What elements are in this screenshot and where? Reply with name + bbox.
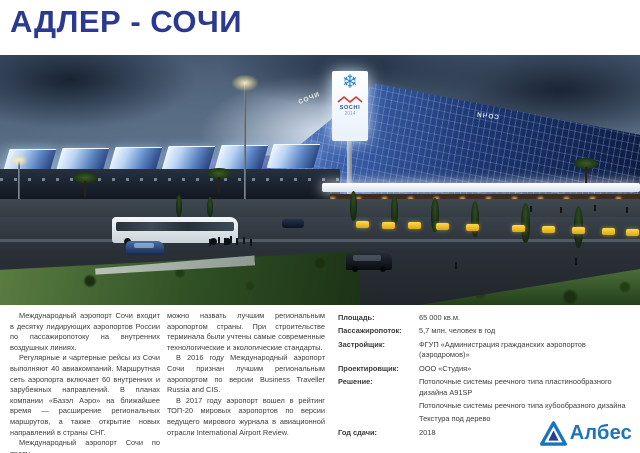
passengers xyxy=(530,206,532,212)
paragraph: можно назвать лучшим региональным аэропо… xyxy=(167,311,325,353)
page-title: АДЛЕР - СОЧИ xyxy=(10,4,242,40)
spec-value: 65 000 кв.м. xyxy=(419,313,636,324)
terminal-module xyxy=(162,146,216,170)
paragraph: В 2017 году аэропорт вошел в рейтинг ТОП… xyxy=(167,396,325,438)
taxi xyxy=(542,226,555,233)
lamp-glow xyxy=(232,75,258,91)
passengers xyxy=(575,258,577,265)
cypress-tree xyxy=(176,195,182,217)
taxi xyxy=(626,229,639,236)
description-column-2: можно назвать лучшим региональным аэропо… xyxy=(167,311,325,438)
slide-adler-sochi: АДЛЕР - СОЧИ СОЧИ СОЧИ ❄ SOCHI 2014 xyxy=(0,0,640,453)
taxi xyxy=(436,223,449,230)
terminal-module xyxy=(267,144,321,168)
airport-render-image: СОЧИ СОЧИ ❄ SOCHI 2014 xyxy=(0,55,640,305)
terminal-module xyxy=(215,145,269,169)
taxi xyxy=(572,227,585,234)
spec-value: ФГУП «Администрация гражданских аэропорт… xyxy=(419,340,636,362)
roof-text: СОЧИ xyxy=(298,91,322,106)
paragraph: Регулярные и чартерные рейсы из Сочи вып… xyxy=(10,353,160,438)
car xyxy=(126,241,164,255)
cypress-tree xyxy=(521,203,530,243)
cypress-tree xyxy=(207,197,213,217)
spec-label: Проектировщик: xyxy=(338,364,417,375)
taxi xyxy=(408,222,421,229)
albes-logo-text: Албес xyxy=(570,422,632,445)
paragraph: Международный аэропорт Сочи по праву xyxy=(10,438,160,453)
taxi xyxy=(512,225,525,232)
spec-label: Пассажиропоток: xyxy=(338,326,417,337)
project-specs-table: Площадь: 65 000 кв.м. Пассажиропоток: 5,… xyxy=(338,313,636,438)
car xyxy=(346,253,392,270)
taxi xyxy=(382,222,395,229)
spec-value: ООО «Студия» xyxy=(419,364,636,375)
zigzag-graphic xyxy=(336,95,364,103)
spec-label: Решение: xyxy=(338,377,417,425)
paragraph: В 2016 году Международный аэропорт Сочи … xyxy=(167,353,325,395)
car xyxy=(282,219,304,228)
spec-value: Потолочные системы реечного типа пластин… xyxy=(419,377,636,425)
passengers xyxy=(218,237,220,244)
lamp-glow xyxy=(10,155,28,166)
taxi xyxy=(602,228,615,235)
cypress-tree xyxy=(471,201,479,237)
albes-logo: Албес xyxy=(540,421,632,446)
spec-value: 5,7 млн. человек в год xyxy=(419,326,636,337)
taxi xyxy=(466,224,479,231)
description-column-1: Международный аэропорт Сочи входит в дес… xyxy=(10,311,160,453)
sochi-2014-sign: ❄ SOCHI 2014 xyxy=(332,71,368,141)
taxi xyxy=(356,221,369,228)
albes-triangle-icon xyxy=(540,421,567,446)
light-pole xyxy=(244,83,246,217)
spec-label: Застройщик: xyxy=(338,340,417,362)
snowflake-icon: ❄ xyxy=(332,71,368,95)
spec-label: Год сдачи: xyxy=(338,428,417,439)
terminal-lower-facade xyxy=(0,169,340,201)
spec-label: Площадь: xyxy=(338,313,417,324)
paragraph: Международный аэропорт Сочи входит в дес… xyxy=(10,311,160,353)
cypress-tree xyxy=(350,191,357,221)
terminal-module xyxy=(109,147,163,171)
illuminated-canopy xyxy=(322,183,640,192)
sign-year: 2014 xyxy=(332,111,368,117)
